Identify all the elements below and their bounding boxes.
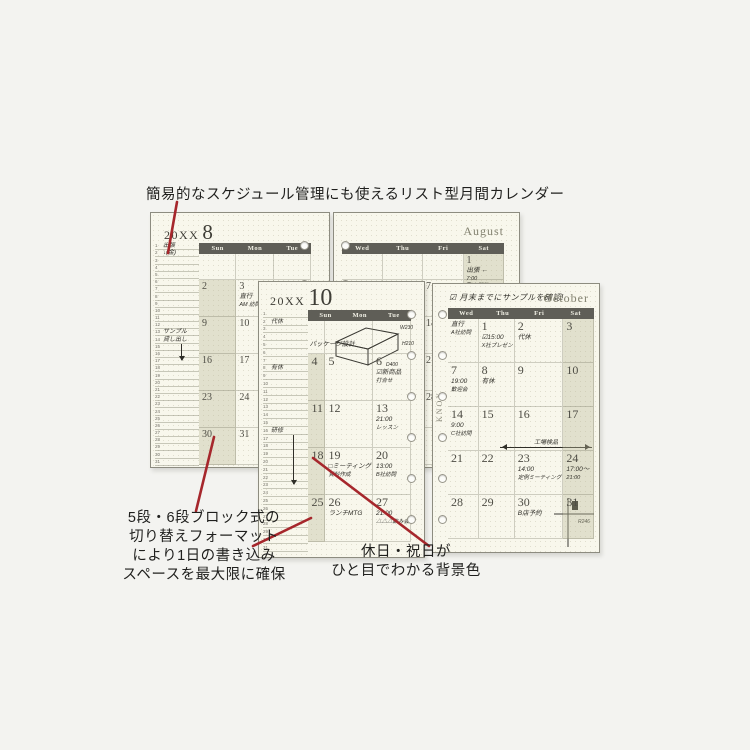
list-day-number: 21	[155, 387, 160, 392]
calendar-cell-holiday: 3	[563, 319, 594, 363]
date-number: 10	[566, 364, 592, 377]
list-day-number: 13	[155, 329, 160, 334]
calendar-cell: 22	[479, 451, 515, 495]
day-list-column: 1出張2↓(金)345678910111213サンプル14貸し出し1516171…	[155, 243, 199, 464]
list-row: 21	[155, 387, 199, 394]
list-day-number: 9	[155, 301, 158, 306]
annotation-line: スペースを最大限に確保	[118, 566, 290, 585]
list-row: 16	[155, 351, 199, 358]
weekday-label: Mon	[236, 243, 273, 254]
list-row: 26	[155, 423, 199, 430]
handwritten-entry: △△△飲み会	[376, 519, 409, 526]
annotation-line: 5段・6段ブロック式の	[118, 509, 290, 528]
calendar-cell-holiday: 30	[199, 428, 236, 465]
handwritten-entry: 資料作成	[328, 472, 371, 479]
list-row: 15	[155, 344, 199, 351]
binder-hole	[438, 433, 447, 442]
list-day-number: 26	[155, 423, 160, 428]
date-number: 1	[482, 320, 513, 333]
calendar-cell: 26ランチMTG	[325, 495, 373, 542]
list-row: 13	[263, 404, 308, 412]
handwritten-entry: A社訪問	[451, 330, 477, 337]
calendar-cell: 直行A社訪問	[448, 319, 479, 363]
list-row: 9	[263, 372, 308, 380]
calendar-cell-holiday: 10	[563, 363, 594, 407]
calendar-cell	[423, 254, 464, 280]
calendar-cell: 2314:00定例ミーティング	[515, 451, 564, 495]
binder-hole	[407, 433, 416, 442]
list-row: 17	[155, 358, 199, 365]
list-row: 31	[155, 459, 199, 466]
calendar-area: SunMonTue パッケージ設計 W230 H210 D400 456☑新商品…	[308, 310, 411, 554]
list-row: 7	[155, 286, 199, 293]
list-day-number: 19	[263, 451, 268, 456]
list-day-number: 17	[155, 358, 160, 363]
calendar-cell: 1☑15:00X社プレゼン	[479, 319, 515, 363]
list-row: 3	[263, 326, 308, 334]
binder-hole	[438, 310, 447, 319]
calendar-cell: 28	[448, 495, 479, 539]
handwritten-entry: レッスン	[376, 425, 409, 432]
binder-hole	[341, 241, 350, 250]
calendar-cell: 30B店予約	[515, 495, 564, 539]
list-row: 10	[155, 308, 199, 315]
handwritten-entry: 21:00	[376, 510, 409, 518]
product-annotation-image: 簡易的なスケジュール管理にも使えるリスト型月間カレンダー 20XX8 1出張2↓…	[0, 0, 750, 750]
handwritten-entry: 21:00	[566, 475, 592, 482]
list-day-number: 30	[155, 452, 160, 457]
list-day-number: 11	[263, 389, 268, 394]
page-title-august: 20XX8	[164, 220, 213, 245]
feature-annotation-top: 簡易的なスケジュール管理にも使えるリスト型月間カレンダー	[146, 186, 565, 205]
binder-hole	[407, 515, 416, 524]
calendar-cell: 19□ミーティング資料作成	[325, 448, 373, 495]
handwritten-entry: 13:00	[376, 463, 409, 471]
list-day-number: 15	[263, 420, 268, 425]
list-day-number: 6	[155, 279, 158, 284]
date-number: 3	[566, 320, 592, 333]
list-row: 9	[155, 301, 199, 308]
month-number: 8	[202, 220, 213, 244]
calendar-cell	[308, 321, 325, 354]
handwritten-entry: 直行	[451, 321, 477, 329]
calendar-cell	[274, 254, 311, 280]
date-number: 13	[376, 402, 409, 415]
binder-hole	[438, 392, 447, 401]
calendar-cell	[342, 254, 383, 280]
date-number: 18	[311, 449, 323, 462]
calendar-cell: 719:00歓迎会	[448, 363, 479, 407]
date-number: 17	[566, 408, 592, 421]
list-row: 8	[155, 293, 199, 300]
date-number: 2	[518, 320, 562, 333]
weekday-label: Sat	[558, 308, 595, 319]
calendar-cell	[236, 254, 273, 280]
weekday-label: Thu	[383, 243, 424, 254]
list-day-number: 7	[263, 358, 266, 363]
calendar-cell: 2721:00△△△飲み会	[373, 495, 411, 542]
list-row: 20	[155, 380, 199, 387]
list-day-number: 13	[263, 404, 268, 409]
calendar-cell: 12	[325, 401, 373, 448]
calendar-cell: 5	[325, 354, 373, 401]
page-body: WedThuFriSat 工場検品 R246 直行A社訪問1☑15:00X社プレ…	[433, 308, 599, 549]
calendar-cell-holiday: 11	[308, 401, 325, 448]
date-number: 14	[451, 408, 477, 421]
list-day-number: 23	[263, 482, 268, 487]
list-row: 23	[155, 401, 199, 408]
calendar-cell-holiday: 23	[199, 391, 236, 428]
list-day-number: 28	[155, 437, 160, 442]
list-row: 30	[155, 451, 199, 458]
list-day-number: 4	[263, 334, 266, 339]
list-day-number: 14	[155, 337, 160, 342]
date-number: 15	[482, 408, 513, 421]
weekday-label: Thu	[485, 308, 522, 319]
handwritten-entry: ランチMTG	[328, 510, 371, 518]
weekday-header-bar: WedThuFriSat	[342, 243, 504, 254]
date-number: 11	[311, 402, 323, 415]
calendar-cell-holiday: 2417:00〜21:00	[563, 451, 594, 495]
calendar-cell: 15	[479, 407, 515, 451]
list-row: 10	[263, 380, 308, 388]
calendar-cell-holiday: 17	[563, 407, 594, 451]
list-row: 17	[263, 435, 308, 443]
binder-hole	[407, 474, 416, 483]
list-handwritten-note: 貸し出し	[163, 334, 187, 343]
calendar-cell: 2013:00B社訪問	[373, 448, 411, 495]
date-number: 28	[451, 496, 477, 509]
list-day-number: 20	[263, 459, 268, 464]
list-row: 4	[263, 333, 308, 341]
weekday-label: Wed	[448, 308, 485, 319]
date-number: 19	[328, 449, 371, 462]
list-day-number: 18	[263, 443, 268, 448]
weekday-label: Fri	[423, 243, 464, 254]
list-day-number: 5	[155, 272, 158, 277]
list-day-number: 5	[263, 342, 266, 347]
calendar-cell	[199, 254, 236, 280]
handwritten-entry: C社訪問	[451, 431, 477, 438]
date-number: 27	[376, 496, 409, 509]
list-day-number: 12	[263, 397, 268, 402]
list-row: 11	[155, 315, 199, 322]
list-row: 28	[155, 437, 199, 444]
date-number: 24	[566, 452, 592, 465]
list-day-number: 16	[263, 428, 268, 433]
list-row: 24	[155, 408, 199, 415]
date-number: 16	[518, 408, 562, 421]
date-number: 26	[328, 496, 371, 509]
list-day-number: 1	[263, 311, 266, 316]
list-handwritten-note: 研修	[271, 425, 283, 434]
weekday-label: Sat	[464, 243, 505, 254]
binder-hole	[407, 310, 416, 319]
calendar-cell: 2代休	[515, 319, 564, 363]
list-row: 14	[263, 411, 308, 419]
date-number: 7	[451, 364, 477, 377]
date-number: 2	[202, 281, 234, 292]
month-number: 10	[308, 285, 332, 311]
list-handwritten-note: ↓(金)	[163, 247, 176, 256]
calendar-cell-holiday: 9	[199, 317, 236, 354]
calendar-cell: 149:00C社訪問	[448, 407, 479, 451]
annotation-line: 切り替えフォーマット	[118, 528, 290, 547]
list-row: 21	[263, 466, 308, 474]
binder-hole	[407, 392, 416, 401]
list-day-number: 2	[155, 250, 158, 255]
list-day-number: 25	[155, 416, 160, 421]
list-handwritten-note: 有休	[271, 362, 283, 371]
list-day-number: 7	[155, 286, 158, 291]
date-number: 6	[376, 355, 409, 368]
date-number: 25	[311, 496, 323, 509]
list-day-number: 12	[155, 322, 160, 327]
list-row: 25	[155, 416, 199, 423]
month-name-october: October	[543, 291, 589, 306]
list-row: 7	[263, 357, 308, 365]
month-grid: 工場検品 R246 直行A社訪問1☑15:00X社プレゼン2代休3719:00歓…	[448, 319, 594, 539]
handwritten-entry: B店予約	[518, 510, 562, 518]
list-row: 11	[263, 388, 308, 396]
list-day-number: 9	[263, 373, 266, 378]
list-day-number: 27	[155, 430, 160, 435]
date-number: 9	[202, 318, 234, 329]
duration-arrow	[293, 435, 294, 485]
handwritten-entry: 出張 ←	[467, 267, 503, 275]
list-row: 24	[263, 489, 308, 497]
calendar-area: WedThuFriSat 工場検品 R246 直行A社訪問1☑15:00X社プレ…	[448, 308, 594, 549]
list-day-number: 22	[155, 394, 160, 399]
calendar-cell-holiday: 4	[308, 354, 325, 401]
date-number: 23	[518, 452, 562, 465]
feature-annotation-format: 5段・6段ブロック式の切り替えフォーマットにより1日の書き込みスペースを最大限に…	[118, 509, 290, 585]
annotation-line: 休日・祝日が	[320, 543, 492, 562]
month-grid: パッケージ設計 W230 H210 D400 456☑新商品打合せ1112132…	[308, 321, 411, 542]
handwritten-entry: 17:00〜	[566, 466, 592, 474]
handwritten-entry: B社訪問	[376, 472, 409, 479]
list-day-number: 4	[155, 265, 158, 270]
list-row: 15	[263, 419, 308, 427]
handwritten-entry: X社プレゼン	[482, 343, 513, 350]
list-day-number: 29	[155, 444, 160, 449]
list-day-number: 22	[263, 475, 268, 480]
list-day-number: 8	[263, 365, 266, 370]
list-day-number: 24	[155, 409, 160, 414]
list-row: 12	[263, 396, 308, 404]
annotation-line: により1日の書き込み	[118, 547, 290, 566]
list-row: 18	[263, 443, 308, 451]
handwritten-entry: 打合せ	[376, 378, 409, 385]
duration-arrow	[181, 344, 182, 361]
calendar-cell: 6☑新商品打合せ	[373, 354, 411, 401]
date-number: 31	[566, 496, 592, 509]
calendar-cell	[373, 321, 411, 354]
list-row: 6	[263, 349, 308, 357]
list-row: 23	[263, 482, 308, 490]
handwritten-entry: ☑15:00	[482, 334, 513, 342]
list-day-number: 21	[263, 467, 268, 472]
binder-hole	[438, 351, 447, 360]
year-label: 20XX	[164, 228, 199, 242]
list-day-number: 11	[155, 315, 160, 320]
list-day-number: 15	[155, 344, 160, 349]
handwritten-entry: 有休	[482, 378, 513, 386]
handwritten-entry: 歓迎会	[451, 387, 477, 394]
list-day-number: 1	[155, 243, 158, 248]
list-row: 16研修	[263, 427, 308, 435]
calendar-cell: 9	[515, 363, 564, 407]
list-row: 22	[263, 474, 308, 482]
list-row: 6	[155, 279, 199, 286]
list-row: 29	[155, 444, 199, 451]
list-day-number: 31	[155, 459, 160, 464]
calendar-cell-holiday: 2	[199, 280, 236, 317]
list-row: 14貸し出し	[155, 336, 199, 343]
handwritten-entry: 21:00	[376, 416, 409, 424]
date-number: 16	[202, 355, 234, 366]
list-handwritten-note: 代休	[271, 316, 283, 325]
list-day-number: 2	[263, 319, 266, 324]
list-day-number: 24	[263, 490, 268, 495]
list-day-number: 3	[263, 326, 266, 331]
list-day-number: 23	[155, 401, 160, 406]
calendar-cell: 16	[515, 407, 564, 451]
handwritten-entry: 9:00	[451, 422, 477, 430]
calendar-cell-holiday: 16	[199, 354, 236, 391]
list-row: 3	[155, 257, 199, 264]
handwritten-entry: □ミーティング	[328, 463, 371, 471]
calendar-cell-holiday: 31	[563, 495, 594, 539]
list-row: 20	[263, 458, 308, 466]
calendar-cell: 29	[479, 495, 515, 539]
list-row: 22	[155, 394, 199, 401]
handwritten-entry: 14:00	[518, 466, 562, 474]
list-day-number: 10	[155, 308, 160, 313]
list-day-number: 3	[155, 258, 158, 263]
list-row: 8有休	[263, 365, 308, 373]
handwritten-entry: 定例ミーティング	[518, 475, 562, 482]
feature-annotation-holiday: 休日・祝日がひと目でわかる背景色	[320, 543, 492, 581]
weekday-label: Mon	[343, 310, 377, 321]
year-label: 20XX	[270, 294, 305, 308]
page-title-october: 20XX10	[270, 285, 332, 312]
list-row: 19	[263, 450, 308, 458]
date-number: 30	[518, 496, 562, 509]
date-number: 29	[482, 496, 513, 509]
handwritten-entry: 19:00	[451, 378, 477, 386]
calendar-cell-holiday: 1出張 ←7:00東京駅発	[464, 254, 505, 280]
date-number: 22	[482, 452, 513, 465]
date-number: 12	[328, 402, 371, 415]
list-day-number: 8	[155, 294, 158, 299]
date-number: 21	[451, 452, 477, 465]
list-day-number: 14	[263, 412, 268, 417]
annotation-line: ひと目でわかる背景色	[320, 562, 492, 581]
date-number: 1	[467, 255, 503, 266]
date-number: 23	[202, 392, 234, 403]
calendar-cell	[325, 321, 373, 354]
handwritten-entry: 代休	[518, 334, 562, 342]
list-row: 18	[155, 365, 199, 372]
list-row: 2代休	[263, 318, 308, 326]
list-day-number: 10	[263, 381, 268, 386]
list-row: 2↓(金)	[155, 250, 199, 257]
binder-hole	[438, 515, 447, 524]
calendar-cell-holiday: 18	[308, 448, 325, 495]
list-row: 19	[155, 372, 199, 379]
date-number: 8	[482, 364, 513, 377]
calendar-cell: 1321:00レッスン	[373, 401, 411, 448]
date-number: 4	[311, 355, 323, 368]
weekday-label: Fri	[521, 308, 558, 319]
binder-hole	[407, 351, 416, 360]
date-number: 30	[202, 429, 234, 440]
list-row: 5	[155, 272, 199, 279]
list-day-number: 16	[155, 351, 160, 356]
list-day-number: 25	[263, 498, 268, 503]
calendar-cell: 21	[448, 451, 479, 495]
date-number: 5	[328, 355, 371, 368]
calendar-cell-holiday: 25	[308, 495, 325, 542]
binder-hole	[438, 474, 447, 483]
list-row: 4	[155, 265, 199, 272]
list-row: 25	[263, 497, 308, 505]
weekday-header-bar: SunMonTue	[199, 243, 311, 254]
list-row: 5	[263, 341, 308, 349]
calendar-page-october-right: ☑ 月末までにサンプルを確認! October KNOX WedThuFriSa…	[432, 283, 600, 553]
date-number: 9	[518, 364, 562, 377]
weekday-header-bar: WedThuFriSat	[448, 308, 594, 319]
list-row: 27	[155, 430, 199, 437]
binder-hole	[300, 241, 309, 250]
list-day-number: 19	[155, 373, 160, 378]
list-day-number: 20	[155, 380, 160, 385]
list-day-number: 18	[155, 365, 160, 370]
month-name-august: August	[463, 224, 504, 239]
handwritten-entry: ☑新商品	[376, 369, 409, 377]
calendar-cell: 8有休	[479, 363, 515, 407]
date-number: 20	[376, 449, 409, 462]
calendar-cell	[383, 254, 424, 280]
list-day-number: 17	[263, 436, 268, 441]
list-day-number: 6	[263, 350, 266, 355]
weekday-label: Tue	[377, 310, 411, 321]
